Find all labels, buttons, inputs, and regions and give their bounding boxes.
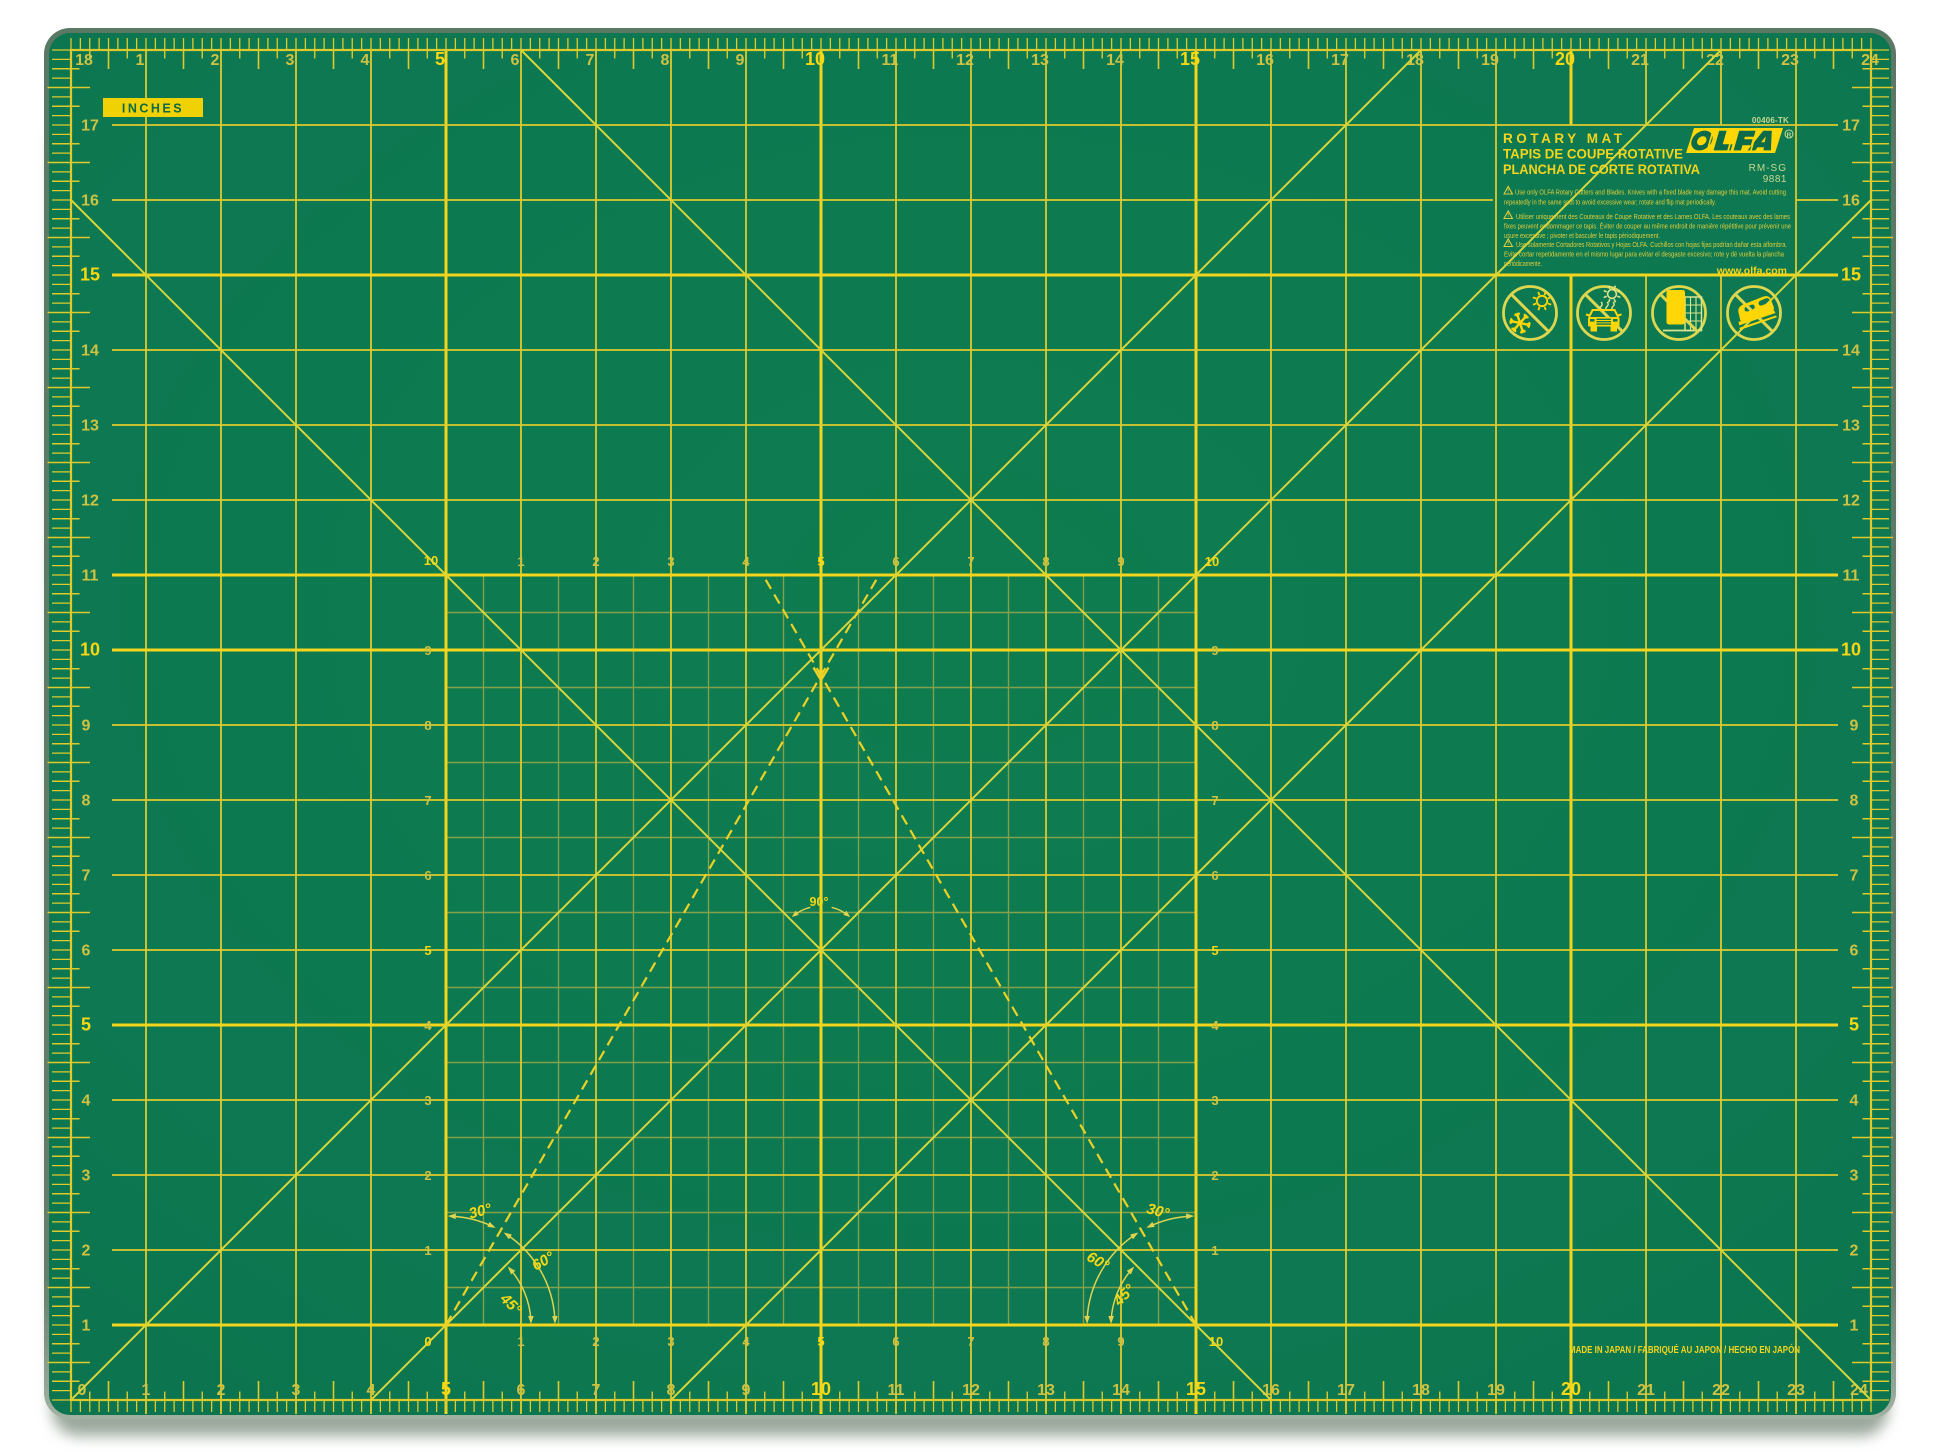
svg-text:14: 14 (81, 343, 99, 360)
svg-text:8: 8 (1850, 793, 1859, 810)
svg-text:17: 17 (1331, 52, 1349, 69)
svg-text:4: 4 (424, 1018, 432, 1033)
svg-text:2: 2 (424, 1168, 431, 1183)
svg-text:24: 24 (1850, 1382, 1868, 1399)
svg-text:3: 3 (667, 554, 674, 569)
svg-text:5: 5 (424, 943, 431, 958)
svg-text:13: 13 (1031, 52, 1049, 69)
svg-text:11: 11 (888, 1382, 905, 1399)
svg-text:19: 19 (1481, 52, 1499, 69)
svg-text:24: 24 (1861, 52, 1879, 69)
svg-text:7: 7 (592, 1382, 601, 1399)
svg-text:17: 17 (81, 118, 99, 135)
svg-text:11: 11 (1843, 568, 1860, 585)
svg-text:4: 4 (82, 1093, 91, 1110)
svg-text:1: 1 (1211, 1243, 1218, 1258)
svg-text:5: 5 (817, 1334, 824, 1349)
svg-text:1: 1 (517, 554, 524, 569)
svg-text:19: 19 (1487, 1382, 1505, 1399)
svg-text:23: 23 (1787, 1382, 1805, 1399)
svg-text:Use solamente Cortadores Rotat: Use solamente Cortadores Rotativos y Hoj… (1516, 240, 1787, 249)
svg-text:7: 7 (1850, 868, 1859, 885)
svg-text:22: 22 (1712, 1382, 1730, 1399)
svg-text:1: 1 (82, 1318, 91, 1335)
svg-text:3: 3 (424, 1093, 431, 1108)
svg-text:6: 6 (424, 868, 431, 883)
svg-text:15: 15 (80, 265, 100, 285)
svg-text:2: 2 (217, 1382, 226, 1399)
svg-text:15: 15 (1841, 265, 1861, 285)
svg-text:usure excessive ; pivoter et b: usure excessive ; pivoter et basculer le… (1504, 231, 1660, 240)
svg-text:3: 3 (667, 1334, 674, 1349)
svg-text:!: ! (1507, 213, 1509, 219)
svg-text:5: 5 (817, 554, 824, 569)
svg-text:5: 5 (1211, 943, 1218, 958)
svg-text:6: 6 (511, 52, 520, 69)
svg-text:12: 12 (956, 52, 974, 69)
svg-text:Utiliser uniquement des Coutea: Utiliser uniquement des Couteaux de Coup… (1516, 212, 1790, 221)
svg-text:15: 15 (1186, 1379, 1206, 1399)
svg-text:4: 4 (742, 554, 750, 569)
svg-text:1: 1 (136, 52, 145, 69)
svg-text:8: 8 (1211, 718, 1218, 733)
svg-text:12: 12 (81, 493, 99, 510)
svg-text:2: 2 (82, 1243, 91, 1260)
svg-text:fixes peuvent endommager ce ta: fixes peuvent endommager ce tapis. Évite… (1504, 222, 1791, 231)
svg-text:0: 0 (424, 1334, 431, 1349)
svg-text:9: 9 (424, 643, 431, 658)
svg-text:20: 20 (1555, 49, 1575, 69)
svg-text:8: 8 (424, 718, 431, 733)
svg-text:9: 9 (82, 718, 91, 735)
svg-text:4: 4 (1211, 1018, 1219, 1033)
svg-text:14: 14 (1112, 1382, 1130, 1399)
svg-text:9: 9 (742, 1382, 751, 1399)
svg-text:7: 7 (967, 554, 974, 569)
svg-text:5: 5 (435, 49, 445, 69)
svg-text:4: 4 (361, 52, 370, 69)
svg-text:8: 8 (661, 52, 670, 69)
svg-text:12: 12 (962, 1382, 980, 1399)
svg-text:6: 6 (1850, 943, 1859, 960)
svg-text:16: 16 (81, 193, 99, 210)
svg-text:20: 20 (1561, 1379, 1581, 1399)
svg-text:13: 13 (1037, 1382, 1055, 1399)
svg-text:16: 16 (1262, 1382, 1280, 1399)
svg-text:10: 10 (1209, 1334, 1223, 1349)
svg-text:6: 6 (1211, 868, 1218, 883)
svg-text:5: 5 (1849, 1015, 1859, 1035)
svg-text:3: 3 (1850, 1168, 1859, 1185)
svg-text:PLANCHA DE CORTE ROTATIVA: PLANCHA DE CORTE ROTATIVA (1503, 162, 1700, 177)
svg-text:!: ! (1507, 241, 1509, 247)
svg-text:7: 7 (967, 1334, 974, 1349)
svg-text:R: R (1787, 132, 1792, 139)
svg-text:3: 3 (292, 1382, 301, 1399)
svg-text:5: 5 (81, 1015, 91, 1035)
svg-text:INCHES: INCHES (122, 102, 184, 116)
svg-text:9881: 9881 (1763, 174, 1787, 185)
svg-text:1: 1 (424, 1243, 431, 1258)
svg-text:15: 15 (1180, 49, 1200, 69)
svg-text:10: 10 (1841, 640, 1861, 660)
svg-text:7: 7 (424, 793, 431, 808)
svg-text:3: 3 (82, 1168, 91, 1185)
svg-text:2: 2 (592, 1334, 599, 1349)
svg-text:9: 9 (736, 52, 745, 69)
svg-text:16: 16 (1256, 52, 1274, 69)
svg-text:8: 8 (1042, 554, 1049, 569)
svg-text:3: 3 (286, 52, 295, 69)
svg-text:90°: 90° (810, 895, 829, 909)
svg-text:6: 6 (82, 943, 91, 960)
svg-text:9: 9 (1211, 643, 1218, 658)
svg-text:13: 13 (1842, 418, 1860, 435)
svg-text:www.olfa.com: www.olfa.com (1716, 265, 1787, 277)
svg-text:!: ! (1507, 188, 1509, 194)
svg-text:ROTARY MAT: ROTARY MAT (1503, 131, 1623, 146)
svg-text:18: 18 (75, 52, 93, 69)
svg-text:18: 18 (1412, 1382, 1430, 1399)
svg-text:6: 6 (892, 554, 899, 569)
svg-text:2: 2 (211, 52, 220, 69)
svg-text:8: 8 (82, 793, 91, 810)
svg-text:17: 17 (1842, 118, 1860, 135)
svg-text:10: 10 (80, 640, 100, 660)
svg-text:2: 2 (1211, 1168, 1218, 1183)
svg-text:RM-SG: RM-SG (1749, 163, 1787, 174)
svg-text:21: 21 (1637, 1382, 1655, 1399)
svg-text:repeatedly in the same spot to: repeatedly in the same spot to avoid exc… (1504, 198, 1716, 207)
svg-text:9: 9 (1850, 718, 1859, 735)
svg-text:7: 7 (1211, 793, 1218, 808)
svg-text:10: 10 (1205, 554, 1219, 569)
svg-text:00406-TK: 00406-TK (1752, 116, 1789, 125)
svg-text:13: 13 (81, 418, 99, 435)
svg-text:8: 8 (1042, 1334, 1049, 1349)
svg-text:6: 6 (517, 1382, 526, 1399)
svg-text:7: 7 (586, 52, 595, 69)
svg-text:12: 12 (1842, 493, 1860, 510)
svg-text:10: 10 (424, 553, 438, 568)
svg-text:17: 17 (1337, 1382, 1355, 1399)
svg-text:7: 7 (82, 868, 91, 885)
svg-text:Use only OLFA Rotary Cutters a: Use only OLFA Rotary Cutters and Blades.… (1515, 188, 1786, 197)
svg-text:1: 1 (142, 1382, 151, 1399)
svg-text:3: 3 (1211, 1093, 1218, 1108)
svg-text:9: 9 (1117, 554, 1124, 569)
svg-text:11: 11 (882, 52, 899, 69)
svg-text:6: 6 (892, 1334, 899, 1349)
svg-text:1: 1 (517, 1334, 524, 1349)
svg-text:1: 1 (1850, 1318, 1859, 1335)
svg-text:periódicamente.: periódicamente. (1504, 259, 1542, 268)
svg-text:4: 4 (742, 1334, 750, 1349)
svg-text:4: 4 (1850, 1093, 1859, 1110)
svg-text:Evite cortar repetidamente en: Evite cortar repetidamente en el mismo l… (1504, 250, 1785, 259)
svg-text:14: 14 (1106, 52, 1124, 69)
svg-text:MADE IN JAPAN / FABRIQUÉ AU J: MADE IN JAPAN / FABRIQUÉ AU JAPON / HECH… (1569, 1343, 1800, 1356)
svg-text:2: 2 (592, 554, 599, 569)
svg-text:16: 16 (1842, 193, 1860, 210)
svg-text:10: 10 (811, 1379, 831, 1399)
svg-text:11: 11 (82, 568, 99, 585)
svg-text:5: 5 (441, 1379, 451, 1399)
svg-text:14: 14 (1842, 343, 1860, 360)
svg-text:TAPIS DE COUPE ROTATIVE: TAPIS DE COUPE ROTATIVE (1503, 147, 1683, 162)
svg-text:10: 10 (805, 49, 825, 69)
svg-text:21: 21 (1631, 52, 1649, 69)
svg-text:23: 23 (1781, 52, 1799, 69)
svg-text:9: 9 (1117, 1334, 1124, 1349)
svg-text:2: 2 (1850, 1243, 1859, 1260)
